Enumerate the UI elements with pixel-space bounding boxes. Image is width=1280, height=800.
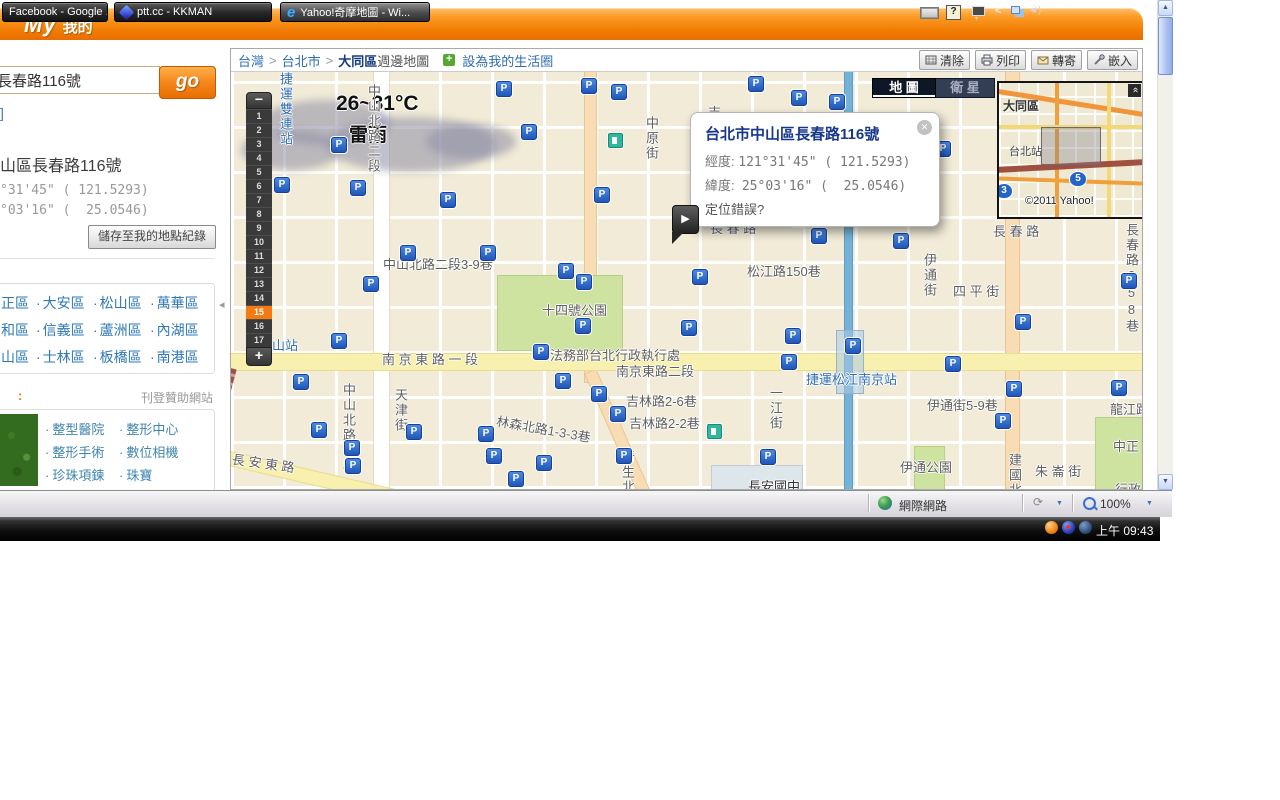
parking-marker[interactable]: P (363, 276, 379, 292)
zoom-magnifier-icon (1083, 497, 1096, 510)
zoom-level-17[interactable]: 17 (246, 333, 272, 347)
taskbar-clock: 上午 09:43 (1096, 522, 1153, 539)
district-link[interactable]: 士林區 (36, 347, 85, 367)
minimap-road (1107, 83, 1111, 217)
parking-marker[interactable]: P (331, 137, 347, 153)
ad-thumbnail-image (0, 414, 38, 486)
street-label: 松江路150巷 (747, 261, 821, 280)
embed-label: 嵌入 (1108, 52, 1132, 69)
parking-marker[interactable]: P (400, 245, 416, 261)
zoom-level-13[interactable]: 13 (246, 277, 272, 291)
parking-marker[interactable]: P (785, 328, 801, 344)
set-life-circle-link[interactable]: 設為我的生活圈 (462, 51, 553, 70)
district-link[interactable]: 信義區 (36, 320, 85, 340)
map-panel: 台灣 > 台北市 > 大同區 週邊地圖 + 設為我的生活圈 清除 列印 轉寄 嵌… (230, 48, 1143, 490)
window-title: ptt.cc - KKMAN (137, 6, 212, 18)
parking-marker[interactable]: P (478, 426, 494, 442)
status-separator (1072, 494, 1073, 512)
street-label: 建國北路 (1005, 453, 1024, 489)
parking-marker[interactable]: P (791, 90, 807, 106)
zoom-dropdown-arrow-icon[interactable]: ▼ (1146, 500, 1153, 507)
zoom-level-11[interactable]: 11 (246, 249, 272, 263)
windows-taskbar (0, 517, 1160, 541)
kkman-tray-icon[interactable] (1062, 521, 1075, 534)
district-link[interactable]: 萬華區 (150, 293, 199, 313)
parking-marker[interactable]: P (1006, 381, 1022, 397)
forward-label: 轉寄 (1052, 52, 1076, 69)
parking-marker[interactable]: P (1121, 273, 1137, 289)
district-link[interactable]: 南港區 (150, 347, 199, 367)
district-link[interactable]: 內湖區 (150, 320, 199, 340)
status-separator (1022, 494, 1023, 512)
railway-line (231, 367, 237, 489)
parking-marker[interactable]: P (555, 373, 571, 389)
parking-marker[interactable]: P (558, 263, 574, 279)
minimap-district-label: 大同區 (1003, 97, 1039, 114)
close-icon[interactable]: ✕ (917, 120, 932, 135)
sponsor-ad-link[interactable]: 珠寶 (119, 465, 152, 484)
taskbar-window-yahoo-maps[interactable]: e Yahoo!奇摩地圖 - Wi... (280, 2, 430, 22)
scrollbar-thumb[interactable] (1158, 17, 1173, 75)
breadcrumb-separator: > (269, 53, 277, 68)
street-label: 山站 (272, 335, 298, 354)
zoom-level-15[interactable]: 15 (246, 305, 272, 319)
parking-marker[interactable]: P (331, 333, 347, 349)
zoom-control: − 1234567891011121314151617 + (246, 92, 272, 366)
zoom-level-1[interactable]: 1 (246, 109, 272, 123)
add-life-circle-icon: + (443, 54, 455, 66)
gas-station-icon[interactable] (608, 133, 623, 148)
district-link[interactable]: 松山區 (93, 293, 142, 313)
parking-marker[interactable]: P (811, 228, 827, 244)
parking-marker[interactable]: P (576, 274, 592, 290)
parking-marker[interactable]: P (945, 356, 961, 372)
clear-button[interactable]: 清除 (919, 50, 970, 70)
route-shield-3: 3 (997, 183, 1013, 199)
taskbar-window-kkman[interactable]: ptt.cc - KKMAN (114, 2, 272, 22)
sponsor-ad-link[interactable]: 整型醫院 (45, 419, 104, 438)
sponsor-ad-link[interactable]: 整形手術 (45, 442, 104, 461)
sponsor-colon: : (18, 388, 22, 403)
ime-help-tray-icon[interactable]: ? (946, 5, 961, 20)
scroll-up-button[interactable]: ▲ (1158, 0, 1173, 16)
kkman-icon (119, 4, 135, 20)
street-label: 南 京 東 路 一 段 (382, 349, 478, 368)
district-link[interactable]: 板橋區 (93, 347, 142, 367)
parking-marker[interactable]: P (1111, 380, 1127, 396)
street-label: 長 安 東 路 (231, 449, 296, 477)
parking-marker[interactable]: P (581, 78, 597, 94)
parking-marker[interactable]: P (533, 344, 549, 360)
result-address-title: 山區長春路116號 (0, 152, 122, 176)
save-location-button[interactable]: 儲存至我的地點紀錄 (88, 225, 216, 249)
window-title: Facebook - Google ... (9, 6, 108, 18)
parking-marker[interactable]: P (311, 422, 327, 438)
protected-mode-icon: ⟳ (1033, 495, 1043, 509)
parking-marker[interactable]: P (350, 180, 366, 196)
street-label: 伊通街 (920, 253, 939, 298)
parking-marker[interactable]: P (829, 94, 845, 110)
zoom-level-9[interactable]: 9 (246, 221, 272, 235)
printer-icon (981, 54, 993, 66)
parking-marker[interactable]: P (681, 320, 697, 336)
street-label: 四 平 街 (953, 281, 999, 300)
street-label: 吉林路2-6巷 (626, 391, 697, 410)
district-link[interactable]: 正區 (1, 293, 29, 313)
breadcrumb-taipei[interactable]: 台北市 (282, 51, 321, 70)
longitude-label: 經度: (705, 154, 735, 169)
zoom-level-10[interactable]: 10 (246, 235, 272, 249)
map-type-button[interactable]: 地 圖 (872, 78, 936, 98)
street-label: 朱 崙 街 (1035, 461, 1081, 480)
popup-latitude-row: 緯度: 25°03'16" ( 25.0546) (705, 175, 927, 194)
internet-explorer-icon: e (287, 5, 295, 20)
parking-marker[interactable]: P (536, 455, 552, 471)
sponsor-ad-link[interactable]: 整形中心 (119, 419, 178, 438)
parking-marker[interactable]: P (692, 269, 708, 285)
zoom-level-list: 1234567891011121314151617 (246, 109, 272, 347)
eraser-icon (925, 54, 937, 66)
cloud-graphic (426, 124, 516, 159)
minimap-copyright: ©2011 Yahoo! (1025, 195, 1094, 207)
tray-expand-chevron[interactable]: < (995, 5, 1001, 17)
minimap-station-label: 台北站 (1009, 143, 1042, 159)
parking-marker[interactable]: P (594, 187, 610, 203)
street-label: 伊通街5-9巷 (927, 395, 998, 414)
parking-marker[interactable]: P (781, 354, 797, 370)
keyboard-tray-icon[interactable] (920, 7, 939, 19)
speaker-tray-icon[interactable]: ◄) (1028, 5, 1041, 16)
street-label: 林森北路1-3-3巷 (495, 411, 592, 446)
zoom-out-button[interactable]: − (246, 92, 272, 109)
zoom-level-3[interactable]: 3 (246, 137, 272, 151)
map-type-toggle: 地 圖 衛 星 (872, 78, 995, 98)
browser-scrollbar[interactable]: ▲ ▼ (1157, 0, 1173, 490)
district-link[interactable]: 山區 (1, 347, 29, 367)
latitude-value: 25°03'16" ( 25.0546) (742, 179, 906, 194)
location-pin-tail (672, 232, 684, 244)
link-tool-icon (1093, 54, 1105, 66)
zoom-level-14[interactable]: 14 (246, 291, 272, 305)
breadcrumb-taiwan[interactable]: 台灣 (238, 51, 264, 70)
language-bar-icon[interactable] (972, 6, 985, 16)
district-links-box: 正區大安區松山區萬華區和區信義區蘆洲區內湖區山區士林區板橋區南港區 (0, 283, 215, 374)
street-label: 中原街 (642, 116, 661, 161)
sponsor-label: 刊登贊助網站 (123, 389, 213, 406)
zoom-level-7[interactable]: 7 (246, 193, 272, 207)
go-button[interactable]: go (159, 66, 216, 99)
internet-zone-label: 網際網路 (899, 497, 947, 514)
breadcrumb-suffix: 週邊地圖 (377, 51, 429, 70)
parking-marker[interactable]: P (845, 338, 861, 354)
orange-app-tray-icon[interactable] (1045, 521, 1058, 534)
zoom-level-5[interactable]: 5 (246, 165, 272, 179)
envelope-icon (1037, 54, 1049, 66)
street-label: 中正 (1113, 436, 1139, 455)
breadcrumb: 台灣 > 台北市 > 大同區 週邊地圖 + 設為我的生活圈 清除 列印 轉寄 嵌… (231, 49, 1142, 72)
parking-marker[interactable]: P (995, 413, 1011, 429)
status-separator (868, 494, 869, 512)
zoom-level-8[interactable]: 8 (246, 207, 272, 221)
street-label: 中山北路二段 (364, 84, 383, 174)
gas-station-icon[interactable] (707, 424, 722, 439)
parking-marker[interactable]: P (480, 245, 496, 261)
location-pin-marker[interactable]: ▶ (672, 205, 699, 234)
zoom-level-12[interactable]: 12 (246, 263, 272, 277)
parking-marker[interactable]: P (406, 424, 422, 440)
zoom-level-2[interactable]: 2 (246, 123, 272, 137)
sidebar-collapse-icon[interactable]: ◂ (219, 298, 225, 311)
sponsor-ad-link[interactable]: 珍珠項鍊 (45, 465, 104, 484)
network-tray-icon[interactable] (1011, 6, 1020, 14)
location-popup: 台北市中山區長春路116號 經度: 121°31'45" ( 121.5293)… (690, 112, 940, 227)
scroll-down-button[interactable]: ▼ (1158, 474, 1173, 490)
parking-marker[interactable]: P (344, 440, 360, 456)
parking-marker[interactable]: P (486, 448, 502, 464)
parking-marker[interactable]: P (345, 458, 361, 474)
parking-marker[interactable]: P (610, 406, 626, 422)
parking-marker[interactable]: P (748, 76, 764, 92)
map-toolbar: 清除 列印 轉寄 嵌入 (914, 50, 1138, 70)
forward-button[interactable]: 轉寄 (1031, 50, 1082, 70)
minimap-viewport-box[interactable] (1041, 127, 1101, 165)
parking-marker[interactable]: P (496, 81, 512, 97)
parking-marker[interactable]: P (760, 449, 776, 465)
result-longitude: °31'45" ( 121.5293) (0, 183, 149, 198)
popup-address-title: 台北市中山區長春路116號 (705, 123, 927, 144)
search-input[interactable] (0, 66, 160, 94)
parking-marker[interactable]: P (521, 124, 537, 140)
sponsor-ad-link[interactable]: 數位相機 (119, 442, 178, 461)
parking-marker[interactable]: P (575, 318, 591, 334)
district-link[interactable]: 大安區 (36, 293, 85, 313)
parking-marker[interactable]: P (508, 471, 524, 487)
street-label: 龍江路 (1110, 399, 1142, 418)
district-link[interactable]: 蘆洲區 (93, 320, 142, 340)
dropdown-arrow-icon[interactable]: ▼ (1056, 500, 1063, 507)
longitude-value: 121°31'45" ( 121.5293) (738, 155, 910, 170)
popup-longitude-row: 經度: 121°31'45" ( 121.5293) (705, 151, 927, 170)
parking-marker[interactable]: P (440, 192, 456, 208)
print-button[interactable]: 列印 (975, 50, 1026, 70)
parking-marker[interactable]: P (293, 374, 309, 390)
street-label: 一江街 (766, 386, 785, 431)
breadcrumb-district: 大同區 (338, 51, 377, 70)
breadcrumb-separator: > (326, 53, 334, 68)
street-label: 伊通公園 (900, 457, 952, 476)
map-viewport[interactable]: 26~31°C 雷雨 中山北路二段3-9巷長 春 路長 春 路松江路150巷十四… (231, 72, 1142, 489)
divider (0, 258, 214, 259)
internet-zone-icon (878, 496, 892, 510)
parking-marker[interactable]: P (591, 386, 607, 402)
embed-button[interactable]: 嵌入 (1087, 50, 1138, 70)
overview-minimap[interactable]: 大同區 台北站 5 3 ©2011 Yahoo! « (997, 81, 1142, 219)
print-label: 列印 (996, 52, 1020, 69)
zoom-level-4[interactable]: 4 (246, 151, 272, 165)
zoom-level-6[interactable]: 6 (246, 179, 272, 193)
zoom-in-button[interactable]: + (246, 347, 272, 366)
parking-marker[interactable]: P (893, 233, 909, 249)
parking-marker[interactable]: P (274, 177, 290, 193)
parking-marker[interactable]: P (1015, 314, 1031, 330)
parking-marker[interactable]: P (616, 448, 632, 464)
browser-status-bar (0, 490, 1172, 517)
street-label: 吉林路2-2巷 (629, 413, 700, 432)
parking-marker[interactable]: P (611, 84, 627, 100)
district-link[interactable]: 和區 (1, 320, 29, 340)
route-shield-5: 5 (1069, 171, 1087, 187)
location-error-link[interactable]: 定位錯誤? (705, 199, 927, 218)
street-label: 長 春 路 (993, 221, 1039, 240)
result-latitude: °03'16" ( 25.0546) (0, 203, 149, 218)
clear-label: 清除 (940, 52, 964, 69)
page-zoom-level: 100% (1100, 497, 1131, 511)
window-title: Yahoo!奇摩地圖 - Wi... (300, 4, 410, 20)
street-label: 十四號公園 (542, 300, 607, 319)
street-label: 長安國中 (748, 476, 800, 489)
globe-tray-icon[interactable] (1079, 521, 1092, 534)
zoom-level-16[interactable]: 16 (246, 319, 272, 333)
street-label: 捷運雙連站 (276, 72, 295, 147)
street-label: 捷運松江南京站 (806, 369, 897, 388)
minimap-collapse-button[interactable]: « (1128, 84, 1141, 97)
satellite-type-button[interactable]: 衛 星 (936, 78, 995, 98)
street-label: 行政 (1115, 479, 1141, 489)
taskbar-window-facebook[interactable]: Facebook - Google ... (2, 2, 108, 22)
street-label: 南京東路二段 (616, 361, 694, 380)
latitude-label: 緯度: (705, 178, 735, 193)
clipped-bracket-text: ] (0, 105, 4, 121)
